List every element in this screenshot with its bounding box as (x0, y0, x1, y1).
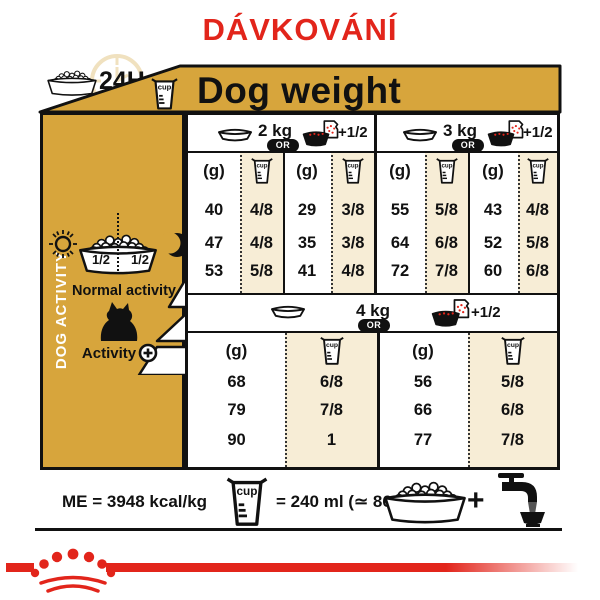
cups-value: 6/8 (501, 401, 524, 420)
page-title: DÁVKOVÁNÍ (0, 12, 600, 48)
yorkshire-terrier-icon (93, 293, 143, 343)
feeding-guide-panel: cup (0, 0, 600, 600)
cups-value: 4/8 (342, 262, 365, 281)
cups-value: 4/8 (250, 234, 273, 253)
cups-value: 7/8 (320, 401, 343, 420)
grams-value: 77 (414, 431, 432, 450)
weight-header-row: 2 kg OR +1/2 3 kg OR +1/2 (188, 115, 557, 153)
or-badge: OR (358, 319, 390, 332)
weight-header-2kg: 2 kg OR +1/2 (188, 115, 375, 151)
cups-value: 4/8 (250, 201, 273, 220)
cups-value: 5/8 (526, 234, 549, 253)
cup-header-icon (251, 157, 273, 185)
grams-header: (g) (296, 161, 318, 181)
grams-value: 43 (484, 201, 502, 220)
plus-half-label: +1/2 (523, 124, 553, 141)
grams-value: 55 (391, 201, 409, 220)
dosage-grid-4kg-mixed: (g) 56 5/8 66 6/8 77 7/8 (378, 333, 557, 469)
pouch-bowl-icon (431, 299, 471, 327)
weight-label: 4 kg (356, 301, 390, 321)
grams-value: 41 (298, 262, 316, 281)
cup-header-icon (501, 336, 525, 366)
grams-header: (g) (389, 161, 411, 181)
grams-value: 66 (414, 401, 432, 420)
cups-value: 3/8 (342, 234, 365, 253)
measuring-cup-icon (226, 477, 268, 527)
water-tap-icon (490, 470, 550, 528)
half-divider-line (117, 213, 119, 271)
plus-half-label: +1/2 (471, 304, 501, 321)
dog-weight-title: Dog weight (197, 70, 401, 112)
grams-value: 29 (298, 201, 316, 220)
weight-header-4kg: 4 kg OR +1/2 (188, 293, 557, 333)
activity-plus-icon (138, 343, 158, 363)
dog-activity-sidebar: DOG ACTIVITY 1/2 1/2 Normal activity (40, 112, 185, 470)
grams-value: 79 (227, 401, 245, 420)
kibble-bowl-icon (382, 472, 468, 526)
measuring-cup-icon (151, 77, 178, 111)
pouch-bowl-icon (302, 120, 340, 147)
plus-water-label: + (467, 484, 485, 518)
cups-value: 5/8 (250, 262, 273, 281)
grams-value: 35 (298, 234, 316, 253)
empty-bowl-icon (403, 128, 437, 143)
footer-divider (35, 528, 562, 531)
cup-header-icon (320, 336, 344, 366)
grams-header: (g) (482, 161, 504, 181)
sun-icon (48, 229, 78, 259)
or-badge: OR (267, 139, 299, 152)
metabolizable-energy-label: ME = 3948 kcal/kg (62, 492, 207, 512)
grams-header: (g) (203, 161, 225, 181)
empty-bowl-icon (218, 128, 252, 143)
pouch-bowl-icon (487, 120, 525, 147)
cup-header-icon (436, 157, 458, 185)
grams-header: (g) (412, 341, 434, 361)
cups-value: 6/8 (526, 262, 549, 281)
dosage-grid-3kg: (g) (g) 55 5/8 43 4/8 64 6/8 52 5/8 72 7… (375, 151, 557, 293)
grams-value: 56 (414, 373, 432, 392)
dosage-table: 2 kg OR +1/2 3 kg OR +1/2 (g) (g) 40 4/8… (185, 112, 560, 470)
cups-value: 1 (327, 431, 336, 450)
weight-header-3kg: 3 kg OR +1/2 (375, 115, 557, 151)
cups-value: 3/8 (342, 201, 365, 220)
cups-value: 5/8 (501, 373, 524, 392)
cups-value: 6/8 (435, 234, 458, 253)
plus-half-label: +1/2 (338, 124, 368, 141)
cups-value: 7/8 (501, 431, 524, 450)
or-badge: OR (452, 139, 484, 152)
grams-value: 72 (391, 262, 409, 281)
grams-value: 52 (484, 234, 502, 253)
grams-value: 60 (484, 262, 502, 281)
grams-value: 68 (227, 373, 245, 392)
grams-value: 53 (205, 262, 223, 281)
grams-value: 47 (205, 234, 223, 253)
weight-label: 3 kg (443, 121, 477, 141)
weight-label: 2 kg (258, 121, 292, 141)
empty-bowl-icon (271, 305, 305, 320)
cups-value: 7/8 (435, 262, 458, 281)
grams-value: 64 (391, 234, 409, 253)
grams-value: 90 (227, 431, 245, 450)
grams-header: (g) (226, 341, 248, 361)
grams-value: 40 (205, 201, 223, 220)
half-left-label: 1/2 (86, 252, 116, 267)
cups-value: 6/8 (320, 373, 343, 392)
activity-label: Activity (79, 345, 139, 362)
cup-header-icon (527, 157, 549, 185)
dosage-grid-2kg: (g) (g) 40 4/8 29 3/8 47 4/8 35 3/8 53 5… (188, 151, 375, 293)
brand-bar-right (106, 563, 578, 572)
half-right-label: 1/2 (125, 252, 155, 267)
cups-value: 5/8 (435, 201, 458, 220)
cups-value: 4/8 (526, 201, 549, 220)
dosage-grid-4kg-dry: (g) 68 6/8 79 7/8 90 1 (188, 333, 378, 469)
cup-header-icon (342, 157, 364, 185)
